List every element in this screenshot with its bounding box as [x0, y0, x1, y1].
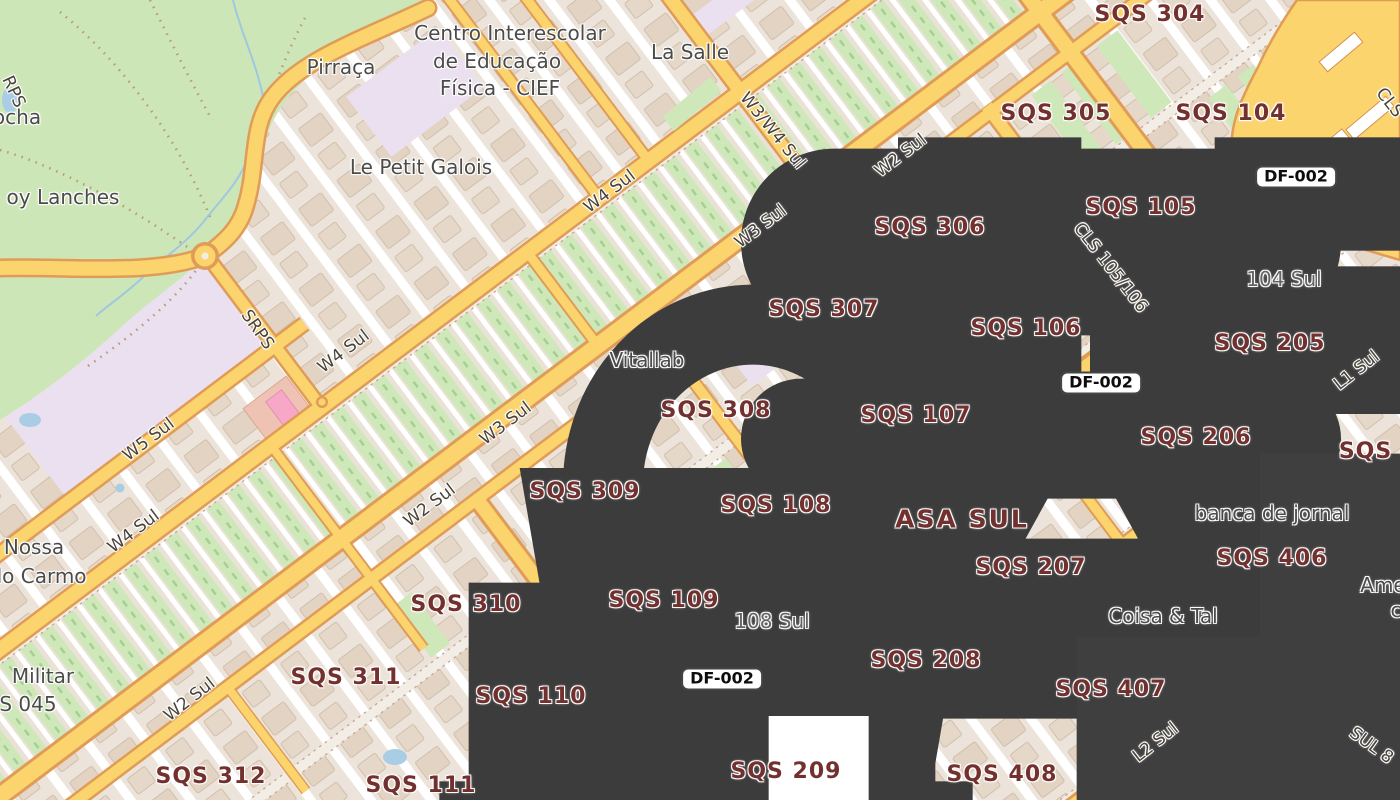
- map-screenshot: { "map": { "type": "street-map", "area":…: [0, 0, 1400, 800]
- building-icon: [469, 583, 936, 800]
- map-canvas[interactable]: [0, 0, 1400, 800]
